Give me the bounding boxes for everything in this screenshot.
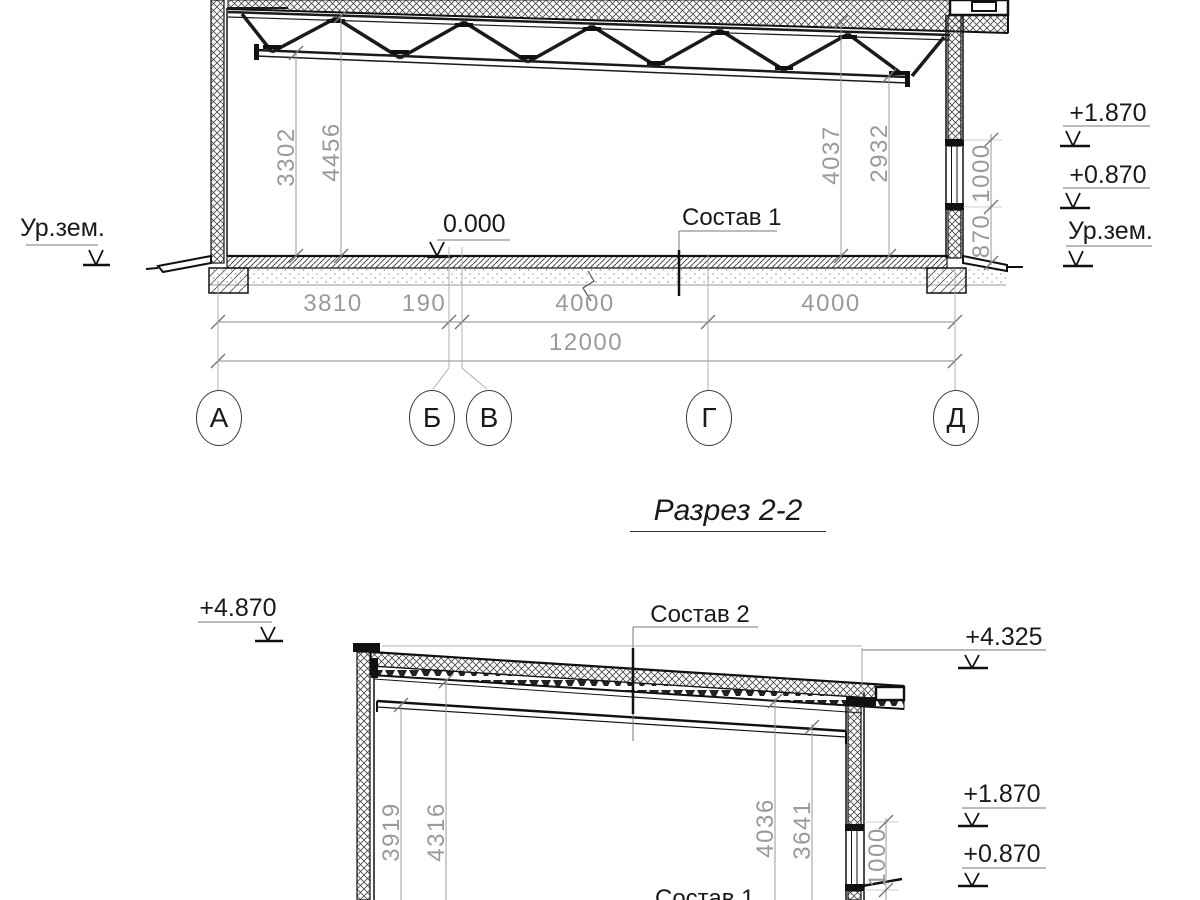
s1-vdim-3302: 3302 (273, 97, 301, 217)
s1-chain-dim-190: 190 (384, 291, 464, 317)
s1-vdim-2932: 2932 (866, 93, 894, 213)
s1-vdim-4037: 4037 (818, 95, 846, 215)
s2-roof (371, 652, 904, 713)
s2-elev-4870: +4.870 (196, 595, 280, 621)
s2-elev-4325: +4.325 (960, 624, 1048, 650)
s1-wall-left (211, 0, 227, 263)
drawing-sheet: Ур.зем. 0.000 Состав 1 3302 4456 4037 29… (0, 0, 1200, 900)
s1-floor-composition-label: Состав 1 (682, 205, 782, 231)
s2-vdim-3641: 3641 (789, 770, 817, 890)
s1-ground-level-label-left: Ур.зем. (20, 215, 105, 241)
s1-ground-level-label-right: Ур.зем. (1068, 218, 1152, 244)
s2-elev-0870: +0.870 (958, 841, 1046, 867)
s1-elev-0870: +0.870 (1066, 162, 1150, 188)
s1-elev-1870: +1.870 (1066, 100, 1150, 126)
s2-elev-1870: +1.870 (958, 781, 1046, 807)
s1-wall-right (945, 15, 964, 258)
s2-vdim-3919: 3919 (378, 772, 406, 892)
s1-chain-dim-3810: 3810 (283, 291, 383, 317)
s2-vdim-4316: 4316 (423, 772, 451, 892)
axis-bubble-d: Д (933, 390, 979, 446)
axis-bubble-b: Б (409, 390, 455, 446)
s1-chain-dim-4000b: 4000 (781, 291, 881, 317)
axis-bubble-v: В (466, 390, 512, 446)
s2-wall-left (353, 643, 380, 900)
s1-zero-level-label: 0.000 (443, 211, 506, 237)
s1-wall-dim-870: 870 (968, 176, 996, 296)
section-title: Разрез 2-2 (630, 494, 826, 532)
s2-floor-composition-label-clipped: Состав 1 (655, 886, 755, 900)
s2-elevation-mark-left (198, 622, 283, 641)
s1-elevation-marks-right (1060, 126, 1152, 266)
drawing-linework (0, 0, 1200, 900)
s2-roof-composition-label: Состав 2 (645, 602, 755, 628)
s1-chain-dim-4000a: 4000 (535, 291, 635, 317)
s1-total-dim-12000: 12000 (526, 330, 646, 356)
s1-vdim-4456: 4456 (318, 92, 346, 212)
s2-elevation-mark-eave (862, 650, 1046, 668)
s2-wall-dim-870-clipped: 870 (864, 868, 892, 900)
s2-vdim-4036: 4036 (752, 768, 780, 888)
s1-zero-elevation-mark (427, 240, 510, 257)
axis-bubble-a: А (196, 390, 242, 446)
s1-elevation-mark-ground-left (26, 245, 110, 265)
axis-bubble-g: Г (686, 390, 732, 446)
